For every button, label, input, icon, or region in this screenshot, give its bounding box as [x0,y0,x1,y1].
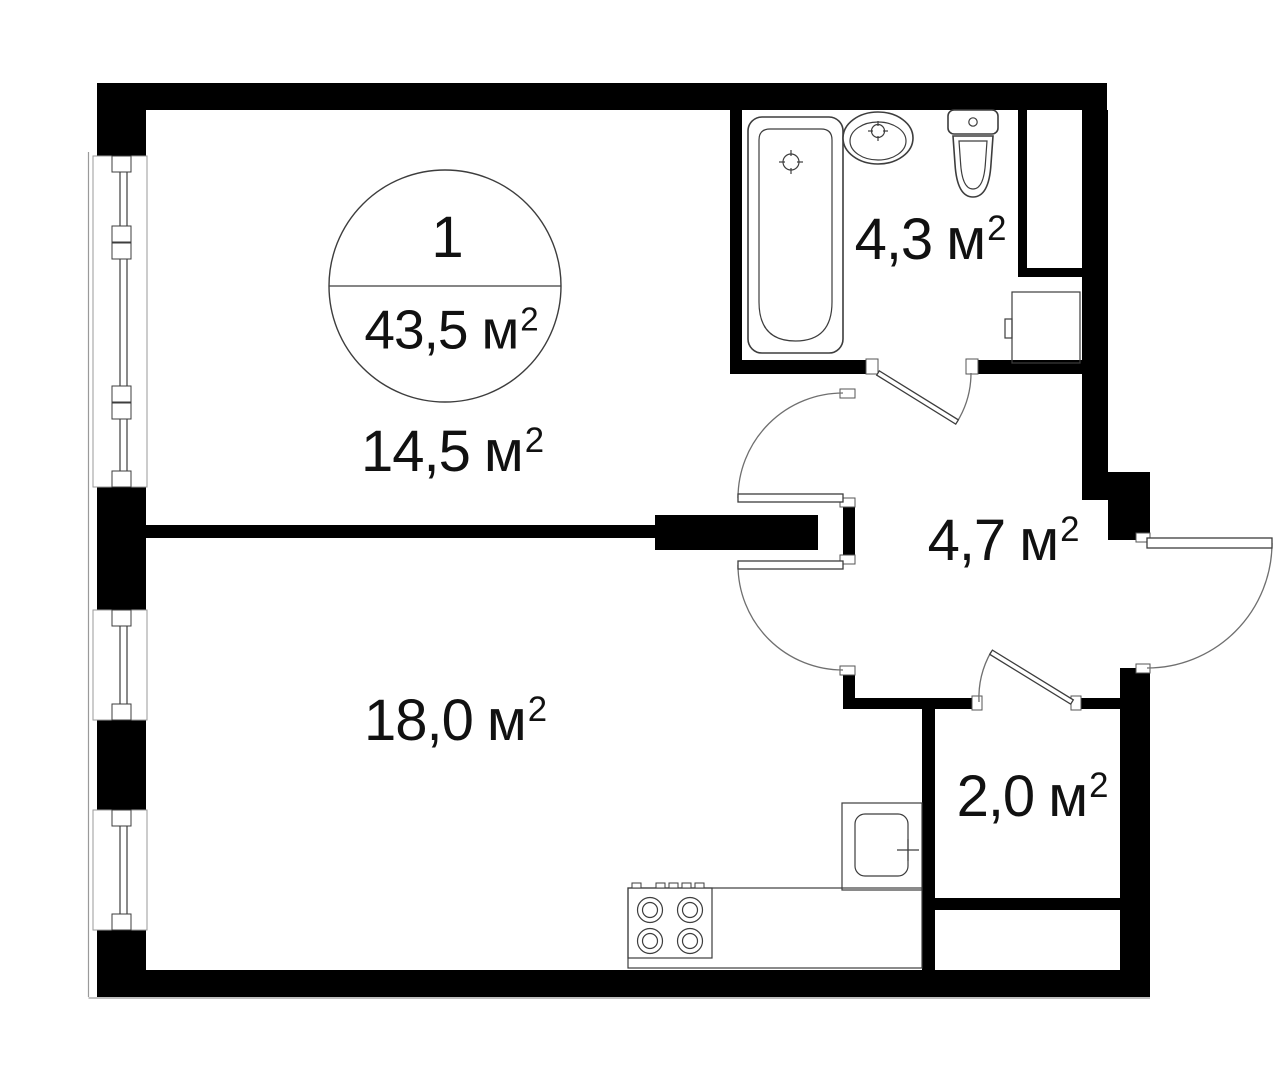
window-kitchen-upper [93,610,147,720]
door-living-room [738,389,855,507]
badge-total-area-value: 43,5 [364,299,467,361]
bathtub-icon [748,117,843,353]
exterior-face-line [89,152,1151,998]
door-kitchen [738,555,855,675]
area-label-storage: 2,0м2 [957,768,1108,826]
floor-plan-canvas: 1 43,5м2 14,5м2 18,0м2 4,3м2 4,7м2 2,0м2 [0,0,1276,1080]
area-label-hallway: 4,7м2 [928,512,1079,570]
floor-plan-drawing [0,0,1276,1080]
ventilation-shaft [1018,110,1082,277]
utility-cabinet-icon [1005,292,1080,363]
area-label-kitchen: 18,0м2 [364,692,546,750]
window-kitchen-lower [93,810,147,930]
badge-total-area: 43,5м2 [364,303,537,358]
bathroom-sink-icon [843,112,913,164]
kitchen-counter [628,888,922,968]
badge-room-count: 1 [431,209,462,267]
door-entrance [1136,533,1272,673]
kitchen-sink-icon [842,803,922,890]
door-bathroom [866,359,978,424]
toilet-icon [948,110,998,197]
area-label-bathroom: 4,3м2 [855,211,1006,269]
stove-icon [628,883,712,958]
area-label-living-room: 14,5м2 [361,423,543,481]
window-living-room [93,156,147,487]
badge-total-area-unit: м2 [481,299,537,361]
door-storage [972,650,1081,710]
